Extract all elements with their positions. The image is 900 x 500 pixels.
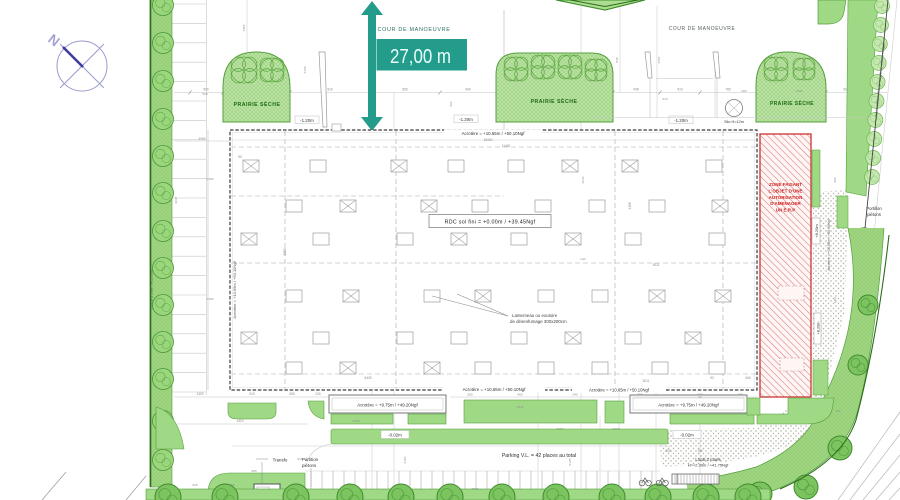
svg-text:1400: 1400 [207, 177, 214, 181]
svg-text:2437: 2437 [657, 56, 661, 63]
svg-text:450: 450 [763, 395, 768, 399]
svg-text:Partition: Partition [302, 457, 319, 462]
svg-text:Transfo: Transfo [273, 458, 288, 463]
svg-text:Acrotère = +10.65m / +50.10Ngf: Acrotère = +10.65m / +50.10Ngf [462, 131, 526, 136]
svg-text:3011: 3011 [653, 263, 660, 267]
svg-text:910: 910 [327, 88, 333, 92]
svg-text:Acrotère = +10.65m / +50.10Ngf: Acrotère = +10.65m / +50.10Ngf [463, 387, 527, 392]
svg-text:7200: 7200 [472, 487, 479, 491]
svg-text:460: 460 [835, 409, 840, 413]
svg-text:-0.02m: -0.02m [680, 433, 694, 438]
svg-text:540: 540 [465, 88, 471, 92]
svg-text:Parking V.L. = 42 places au to: Parking V.L. = 42 places au total [502, 453, 576, 459]
svg-text:92: 92 [710, 376, 714, 380]
svg-text:910: 910 [677, 88, 683, 92]
svg-text:240: 240 [572, 392, 577, 396]
svg-text:500: 500 [203, 88, 209, 92]
svg-text:300: 300 [467, 392, 472, 396]
svg-text:990: 990 [229, 483, 234, 487]
svg-text:PRAIRIE SÈCHE: PRAIRIE SÈCHE [531, 97, 578, 105]
svg-text:-0.02m: -0.02m [388, 433, 402, 438]
svg-text:3567: 3567 [557, 427, 564, 431]
svg-text:2308: 2308 [353, 419, 360, 423]
svg-text:COUR DE MANOEUVRE: COUR DE MANOEUVRE [669, 26, 736, 32]
svg-text:27,00 m: 27,00 m [390, 45, 451, 68]
svg-text:+8.20m: +8.20m [814, 224, 819, 238]
svg-text:4158: 4158 [628, 202, 632, 209]
svg-text:90: 90 [238, 155, 242, 159]
svg-text:D'AMENAGER: D'AMENAGER [770, 201, 801, 206]
svg-text:915: 915 [192, 483, 197, 487]
svg-text:2150: 2150 [403, 456, 407, 463]
svg-text:280: 280 [741, 89, 746, 93]
svg-text:5125: 5125 [568, 458, 572, 465]
svg-text:Acrotère = +10.65m / +50.10Ngf: Acrotère = +10.65m / +50.10Ngf [232, 260, 237, 318]
svg-text:3400: 3400 [207, 297, 214, 301]
svg-text:240: 240 [315, 392, 321, 396]
svg-text:15400: 15400 [484, 138, 493, 142]
svg-text:655: 655 [289, 392, 295, 396]
svg-text:UN E.R.P: UN E.R.P [776, 208, 796, 213]
svg-text:765: 765 [725, 88, 731, 92]
svg-text:+8.20m: +8.20m [817, 322, 821, 335]
svg-text:300: 300 [637, 392, 642, 396]
svg-text:915: 915 [297, 457, 302, 461]
svg-text:750: 750 [697, 449, 703, 453]
svg-text:960: 960 [697, 392, 702, 396]
svg-text:piétons: piétons [302, 463, 317, 468]
svg-text:1400: 1400 [196, 392, 203, 396]
svg-text:500: 500 [202, 92, 207, 96]
svg-text:PRAIRIE SÈCHE: PRAIRIE SÈCHE [234, 100, 281, 108]
svg-text:910: 910 [249, 392, 255, 396]
svg-text:ZONE FAISANT: ZONE FAISANT [769, 182, 802, 187]
svg-text:1430: 1430 [796, 89, 803, 93]
svg-text:9097: 9097 [174, 196, 178, 203]
svg-text:945: 945 [633, 88, 639, 92]
svg-text:Acrotère = +9.75m / +49.20Ngf: Acrotère = +9.75m / +49.20Ngf [658, 403, 719, 408]
svg-text:1110: 1110 [833, 297, 837, 304]
svg-text:piétons: piétons [867, 212, 881, 217]
svg-text:460: 460 [745, 376, 751, 380]
svg-text:de désenfumage 300x200cm: de désenfumage 300x200cm [510, 319, 567, 324]
svg-text:962: 962 [833, 177, 837, 182]
svg-text:Portillon: Portillon [866, 206, 882, 211]
svg-text:2280: 2280 [283, 248, 287, 255]
svg-text:2769: 2769 [303, 66, 307, 73]
svg-text:7300: 7300 [242, 24, 246, 31]
svg-text:AUTORISATION: AUTORISATION [769, 195, 803, 200]
svg-text:1841: 1841 [517, 405, 524, 409]
svg-text:-1.20m: -1.20m [300, 118, 314, 123]
svg-text:Local 2 roues: Local 2 roues [695, 457, 720, 462]
svg-text:Acrotère = +10.65m / +50.10Ngf: Acrotère = +10.65m / +50.10Ngf [827, 219, 831, 270]
svg-text:3400: 3400 [199, 137, 206, 141]
svg-text:560: 560 [449, 101, 453, 106]
svg-text:3011: 3011 [643, 379, 650, 383]
svg-text:-1.20m: -1.20m [459, 117, 473, 122]
svg-text:1410: 1410 [236, 419, 243, 423]
svg-text:910: 910 [662, 97, 667, 101]
svg-text:6425: 6425 [364, 376, 371, 380]
svg-text:560: 560 [402, 88, 408, 92]
svg-text:H=+2.30m / +41.75Ngf: H=+2.30m / +41.75Ngf [688, 463, 729, 468]
svg-text:GW: GW [580, 257, 585, 261]
svg-text:300: 300 [665, 449, 671, 453]
svg-text:L'OBJET D'UNE: L'OBJET D'UNE [769, 188, 803, 193]
svg-text:Acrotère = +9.75m / +49.20Ngf: Acrotère = +9.75m / +49.20Ngf [357, 403, 418, 408]
svg-text:Silo H=12m: Silo H=12m [724, 120, 744, 124]
svg-text:188: 188 [737, 392, 742, 396]
svg-text:960: 960 [517, 392, 522, 396]
svg-text:Lanterneau ou exutoire: Lanterneau ou exutoire [512, 313, 558, 318]
svg-text:PRAIRIE SÈCHE: PRAIRIE SÈCHE [770, 99, 814, 107]
svg-text:2040: 2040 [581, 176, 585, 183]
svg-text:COUR DE MANOEUVRE: COUR DE MANOEUVRE [378, 27, 451, 33]
svg-text:-1.20m: -1.20m [674, 118, 688, 123]
svg-text:995: 995 [251, 469, 256, 473]
svg-text:845: 845 [615, 57, 619, 62]
svg-text:11400: 11400 [502, 144, 511, 148]
svg-text:RDC sol fini = +0.00m / +39.45: RDC sol fini = +0.00m / +39.45Ngf [445, 220, 536, 226]
svg-text:2308: 2308 [613, 427, 620, 431]
